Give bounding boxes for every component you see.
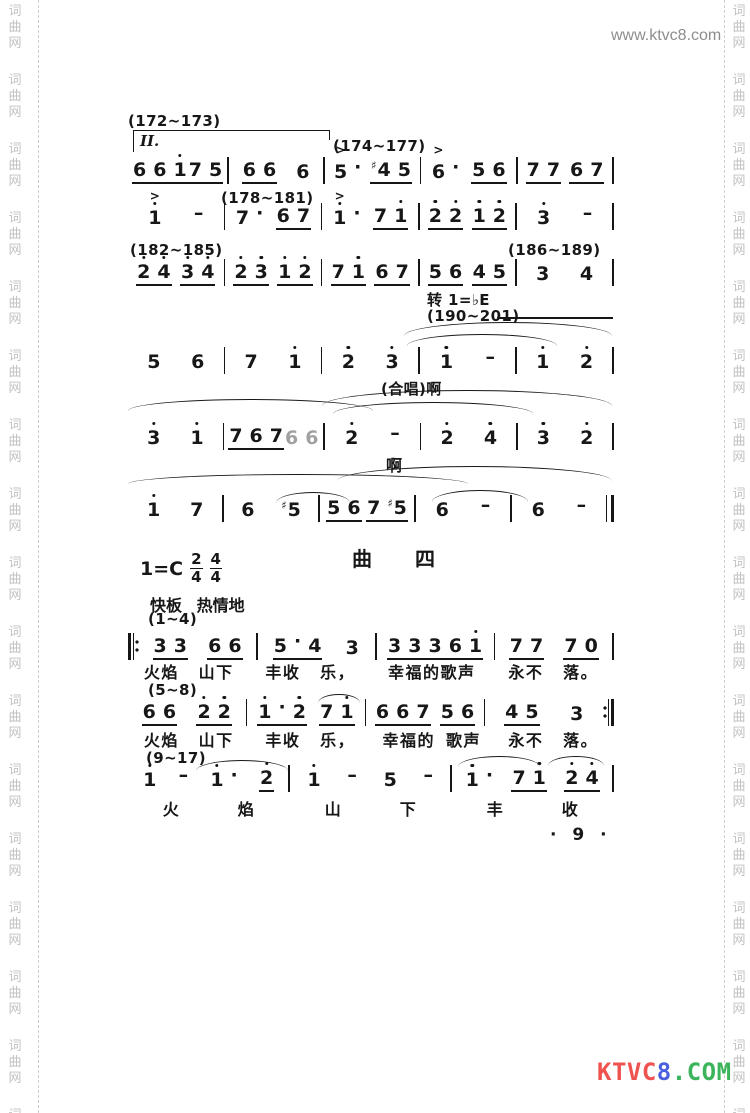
lyric-measure: 永不落。 <box>493 659 615 683</box>
beat-group: 71 <box>331 263 366 286</box>
beat-group: – <box>389 429 401 450</box>
note: 7 <box>189 161 202 180</box>
beat-group: ♯45 <box>370 160 412 184</box>
watermark-char: 词 <box>8 1039 21 1055</box>
slur-arc <box>337 466 612 481</box>
beat-group: – <box>485 353 497 374</box>
beat-group: 22 <box>196 703 231 726</box>
beat-group: 56 <box>471 161 506 184</box>
beat-group: 66 <box>242 161 277 184</box>
note: 4 <box>308 637 321 656</box>
note: 2 <box>260 769 273 788</box>
watermark-char: 词 <box>8 142 21 158</box>
extension-line <box>497 317 613 319</box>
note: 1 <box>340 703 353 722</box>
watermark-char: 词 <box>732 418 745 434</box>
measure: 2312 <box>225 263 321 288</box>
note: 5 <box>334 163 347 182</box>
note: 2 <box>345 429 358 448</box>
watermark-char: 网 <box>8 174 21 190</box>
beat-group: 2 <box>344 429 359 450</box>
beat-group: 1 <box>142 771 157 792</box>
beat-group: 1 <box>535 353 550 374</box>
watermark-char: 网 <box>732 795 745 811</box>
watermark-char: 曲 <box>732 365 745 381</box>
right-dashed-divider <box>724 0 725 1113</box>
beat-group: 3 <box>569 705 584 726</box>
measure: 17 <box>128 501 222 524</box>
lyric-measure: 山下 <box>290 796 452 820</box>
lyric-word: 下 <box>400 796 418 820</box>
beat-group: 7♯5 <box>366 498 408 522</box>
note: 7 <box>270 427 283 446</box>
measure: 31 <box>128 429 223 452</box>
measure: 24 <box>421 429 516 452</box>
note: 7 <box>564 637 577 656</box>
beat-group: 6· <box>431 163 460 184</box>
watermark-char: 曲 <box>732 986 745 1002</box>
watermark-char: 网 <box>732 36 745 52</box>
watermark-char: 词 <box>8 1108 21 1113</box>
note: 6 <box>153 161 166 180</box>
lyric-measure: 火焰山下 <box>128 659 250 683</box>
watermark-char: 网 <box>732 105 745 121</box>
watermark-char: 曲 <box>732 434 745 450</box>
note: 1 <box>210 771 223 790</box>
measure: 56 <box>128 353 224 376</box>
beat-group: 70 <box>563 637 598 660</box>
lyric-word: 乐， <box>320 659 355 683</box>
beat-group: 5 <box>146 353 161 374</box>
lyric-word: 丰收 <box>265 727 300 751</box>
note: 1 <box>147 501 160 520</box>
beat-group: 6 <box>531 501 546 522</box>
measure: 71 <box>225 353 321 376</box>
note: 2 <box>429 207 442 226</box>
note: 4 <box>505 703 518 722</box>
lyric-word: 歌声 <box>446 727 481 751</box>
watermark-char: 词 <box>8 763 21 779</box>
note: 3 <box>154 637 167 656</box>
notation-line-3: 243423127167564534 <box>128 248 614 288</box>
note: 3 <box>537 429 550 448</box>
watermark-column-left: 词曲网词曲网词曲网词曲网词曲网词曲网词曲网词曲网词曲网词曲网词曲网词曲网词曲网词… <box>6 4 24 1113</box>
watermark-column-right: 词曲网词曲网词曲网词曲网词曲网词曲网词曲网词曲网词曲网词曲网词曲网词曲网词曲网词… <box>730 4 748 1113</box>
beat-group: 1·2 <box>257 703 307 726</box>
dash: – <box>583 204 593 223</box>
watermark-char: 词 <box>732 901 745 917</box>
dash: – <box>424 766 434 785</box>
note: 7 <box>530 637 543 656</box>
measure: 5·♯45 <box>325 160 420 186</box>
note: 2 <box>137 263 150 282</box>
note: 1 <box>533 769 546 788</box>
note: 4 <box>484 429 497 448</box>
note: 3 <box>147 429 160 448</box>
watermark-char: 网 <box>8 519 21 535</box>
note: ♯4 <box>371 160 391 180</box>
watermark-char: 词 <box>8 487 21 503</box>
note: 1 <box>307 771 320 790</box>
note: 6 <box>143 703 156 722</box>
watermark-char: 曲 <box>732 503 745 519</box>
note: 6 <box>133 161 146 180</box>
beat-group: 77 <box>526 161 561 184</box>
watermark-char: 曲 <box>732 917 745 933</box>
dash: – <box>390 424 400 443</box>
watermark-char: 网 <box>8 381 21 397</box>
logo-part-com: .COM <box>672 1058 732 1086</box>
beat-group: 1· <box>332 209 361 230</box>
note: 1 <box>536 353 549 372</box>
watermark-char: 曲 <box>732 296 745 312</box>
beat-group: 45 <box>472 263 507 286</box>
watermark-char: 网 <box>732 588 745 604</box>
note: 6 <box>449 263 462 282</box>
barline <box>612 259 614 286</box>
watermark-char: 词 <box>732 832 745 848</box>
beat-group: 34 <box>180 263 215 286</box>
lyric-word: 火焰 <box>144 727 179 751</box>
dash: – <box>577 496 587 515</box>
note: 7 <box>590 161 603 180</box>
note: 3 <box>346 639 359 658</box>
watermark-char: 曲 <box>8 434 21 450</box>
beat-group: 7 <box>189 501 204 522</box>
watermark-char: 词 <box>8 970 21 986</box>
watermark-char: 词 <box>8 694 21 710</box>
note: 0 <box>585 637 598 656</box>
watermark-char: 曲 <box>8 848 21 864</box>
beat-group: 5·4 <box>273 637 323 660</box>
beat-group: – <box>582 209 594 230</box>
note: 2 <box>342 353 355 372</box>
note: 7 <box>510 637 523 656</box>
beat-group: 75 <box>188 161 223 184</box>
lyrics-line-1: 火焰山下丰收乐，幸福的歌声永不落。 <box>128 659 614 683</box>
beat-group: 1 <box>306 771 321 792</box>
lyric-word: 山 <box>325 796 343 820</box>
dot: · <box>354 158 361 177</box>
note: 2 <box>449 207 462 226</box>
beat-group: 7 <box>243 353 258 374</box>
watermark-char: 网 <box>8 312 21 328</box>
note: 7 <box>416 703 429 722</box>
tempo-marking: 快板 热情地 <box>150 592 245 616</box>
lyrics-line-3: 火焰山下丰收 <box>128 796 614 820</box>
measure: 453 <box>485 703 603 728</box>
watermark-char: 网 <box>732 381 745 397</box>
barline <box>612 633 614 660</box>
lyric-word: 丰 <box>487 796 505 820</box>
note: 7 <box>297 207 310 226</box>
beat-group: 4 <box>579 265 594 286</box>
note: 6 <box>449 637 462 656</box>
beat-group: 45 <box>504 703 539 726</box>
watermark-char: 曲 <box>732 779 745 795</box>
beat-group: 3 <box>146 429 161 450</box>
lyric-measure: 幸福的歌声 <box>371 659 493 683</box>
note: 2 <box>197 703 210 722</box>
beat-group: 22 <box>428 207 463 230</box>
watermark-char: 词 <box>732 142 745 158</box>
note: 3 <box>570 705 583 724</box>
notation-line-8: 66221·27166756453 <box>128 688 614 728</box>
lyric-word: 落。 <box>563 659 598 683</box>
barline <box>612 423 614 450</box>
note: 6 <box>396 703 409 722</box>
watermark-char: 曲 <box>732 848 745 864</box>
note: 1 <box>278 263 291 282</box>
beat-group: 3 <box>536 209 551 230</box>
watermark-char: 曲 <box>732 89 745 105</box>
measure: 76766 <box>224 427 323 452</box>
watermark-char: 曲 <box>8 227 21 243</box>
watermark-char: 网 <box>8 864 21 880</box>
beat-group: 24 <box>564 769 599 792</box>
beat-group: 4 <box>483 429 498 450</box>
measure: 12 <box>517 353 613 376</box>
note: 6 <box>263 161 276 180</box>
lyric-word: 丰收 <box>265 659 300 683</box>
measure: 1–5– <box>290 771 450 794</box>
key-text: 1=C <box>140 558 183 580</box>
note: 7 <box>367 499 380 518</box>
beat-group: 2 <box>579 429 594 450</box>
watermark-char: 网 <box>732 864 745 880</box>
beat-group: 71 <box>373 207 408 230</box>
measure: 2212 <box>420 207 516 232</box>
watermark-char: 词 <box>8 73 21 89</box>
note: 6 <box>492 161 505 180</box>
beat-group: 1· <box>209 771 238 792</box>
note: 3 <box>536 265 549 284</box>
lyric-word: 焰 <box>238 796 256 820</box>
watermark-char: 曲 <box>8 641 21 657</box>
dot: · <box>452 158 459 177</box>
measure: 66175 <box>128 161 227 186</box>
watermark-char: 网 <box>8 1002 21 1018</box>
beat-group: 767 <box>228 427 284 450</box>
note: 7 <box>527 161 540 180</box>
beat-group: 1 <box>147 209 162 230</box>
beat-group: 5 <box>383 771 398 792</box>
note: 6 <box>250 427 263 446</box>
watermark-char: 词 <box>732 4 745 20</box>
note: 1 <box>466 771 479 790</box>
beat-group: 3 <box>345 639 360 660</box>
watermark-char: 曲 <box>8 917 21 933</box>
note: 5 <box>147 353 160 372</box>
note: 5 <box>525 703 538 722</box>
watermark-char: 词 <box>8 211 21 227</box>
note: 3 <box>428 637 441 656</box>
note: 7 <box>320 703 333 722</box>
sheet-music-page: 词曲网词曲网词曲网词曲网词曲网词曲网词曲网词曲网词曲网词曲网词曲网词曲网词曲网词… <box>0 0 750 1113</box>
notation-line-6: 176♯5567♯56–6– <box>128 484 614 524</box>
measure: 1·7124 <box>452 769 612 794</box>
beat-group: 1 <box>146 501 161 522</box>
note: 5 <box>472 161 485 180</box>
dot: · <box>353 204 360 223</box>
beat-group: – <box>346 771 358 792</box>
note: 3 <box>388 637 401 656</box>
note: 6 <box>285 429 298 448</box>
site-url[interactable]: www.ktvc8.com <box>611 27 721 45</box>
dot: · <box>278 698 285 717</box>
watermark-char: 曲 <box>8 986 21 1002</box>
watermark-char: 曲 <box>732 572 745 588</box>
note: 6 <box>191 353 204 372</box>
watermark-char: 词 <box>732 1108 745 1113</box>
watermark-char: 词 <box>732 763 745 779</box>
watermark-char: 曲 <box>732 227 745 243</box>
watermark-char: 曲 <box>8 20 21 36</box>
note: 6 <box>532 501 545 520</box>
note: 5 <box>441 703 454 722</box>
measure: 1·271 <box>247 703 365 728</box>
note: 3 <box>181 263 194 282</box>
watermark-char: 曲 <box>8 503 21 519</box>
watermark-char: 词 <box>8 556 21 572</box>
beat-group: 6 <box>240 501 255 522</box>
watermark-char: 网 <box>8 105 21 121</box>
watermark-char: 词 <box>732 556 745 572</box>
measure: 5645 <box>420 263 516 288</box>
meter-4-4: 4 4 <box>210 551 222 587</box>
measure: 3– <box>517 209 613 232</box>
lyric-measure: 丰收乐， <box>250 659 372 683</box>
beat-group: – <box>480 501 492 522</box>
beat-group: 23 <box>233 263 268 286</box>
beat-group: 6 <box>190 353 205 374</box>
watermark-char: 网 <box>8 795 21 811</box>
measure: 23 <box>322 353 418 376</box>
watermark-char: 网 <box>8 933 21 949</box>
lyric-measure: 丰收 <box>452 796 614 820</box>
note: 7 <box>190 501 203 520</box>
note: 3 <box>255 263 268 282</box>
note: 1 <box>333 209 346 228</box>
note: 7 <box>332 263 345 282</box>
watermark-char: 词 <box>8 625 21 641</box>
note: 5 <box>384 771 397 790</box>
measure: 2– <box>325 429 420 452</box>
beat-group: 3 <box>536 429 551 450</box>
repeat-start-barline <box>128 633 139 660</box>
note: 6 <box>163 703 176 722</box>
barline <box>612 203 614 230</box>
watermark-char: 网 <box>732 243 745 259</box>
note: 4 <box>580 265 593 284</box>
measure: 1–1·2 <box>128 769 288 794</box>
watermark-char: 曲 <box>732 158 745 174</box>
measure: 32 <box>518 429 613 452</box>
lyric-measure: 火焰山下 <box>128 727 250 751</box>
beat-group: – <box>423 771 435 792</box>
watermark-char: 网 <box>732 312 745 328</box>
beat-group: 77 <box>509 637 544 660</box>
beat-group: 1 <box>189 429 204 450</box>
watermark-char: 网 <box>732 726 745 742</box>
watermark-char: 词 <box>8 901 21 917</box>
measure: 7767 <box>518 161 613 186</box>
note: 1 <box>258 703 271 722</box>
watermark-char: 词 <box>8 280 21 296</box>
watermark-char: 网 <box>8 1071 21 1087</box>
note: 5 <box>398 161 411 180</box>
note: 1 <box>394 207 407 226</box>
measure: 6♯5 <box>224 500 318 524</box>
lyric-word: 幸福的 <box>382 727 435 751</box>
beat-group: 12 <box>277 263 312 286</box>
watermark-char: 曲 <box>8 365 21 381</box>
measure: 6– <box>512 501 606 524</box>
note: 1 <box>469 637 482 656</box>
beat-group: 2 <box>439 429 454 450</box>
watermark-char: 网 <box>8 243 21 259</box>
note: 1 <box>173 161 186 180</box>
beat-group: 56 <box>428 263 463 286</box>
watermark-char: 网 <box>732 1002 745 1018</box>
note: 6 <box>305 429 318 448</box>
note: 6 <box>296 163 309 182</box>
beat-group: 6 <box>435 501 450 522</box>
watermark-char: 曲 <box>732 641 745 657</box>
lyric-word: 幸福的歌声 <box>388 659 476 683</box>
measure: 1– <box>420 353 516 376</box>
dot: · <box>294 632 301 651</box>
final-barline <box>606 495 614 522</box>
measure: 2434 <box>128 263 224 288</box>
beat-group: – <box>193 209 205 230</box>
note: 2 <box>218 703 231 722</box>
note: 6 <box>376 703 389 722</box>
site-logo[interactable]: KTVC8.COM <box>597 1058 732 1086</box>
watermark-char: 词 <box>732 625 745 641</box>
measure: 666 <box>229 161 324 186</box>
beat-group: 3 <box>384 353 399 374</box>
note: 4 <box>157 263 170 282</box>
lyrics-line-2: 火焰山下丰收乐，幸福的歌声永不落。 <box>128 727 614 751</box>
note: 6 <box>432 163 445 182</box>
beat-group: 66 <box>142 703 177 726</box>
watermark-char: 曲 <box>8 779 21 795</box>
note: 2 <box>440 429 453 448</box>
note: 1 <box>143 771 156 790</box>
note: 7 <box>512 769 525 788</box>
note: 6 <box>461 703 474 722</box>
note: ♯5 <box>281 500 301 520</box>
note: 6 <box>277 207 290 226</box>
note: 7 <box>236 209 249 228</box>
lyric-word: 火 <box>163 796 181 820</box>
notation-line-9: 1–1·21–5–1·7124 <box>128 754 614 794</box>
note: 2 <box>580 429 593 448</box>
beat-group: 66 <box>284 429 319 450</box>
beat-group: 2 <box>579 353 594 374</box>
note: 6 <box>570 161 583 180</box>
dash: – <box>179 766 189 785</box>
note: 3 <box>537 209 550 228</box>
lyric-word: 落。 <box>563 727 598 751</box>
watermark-char: 网 <box>732 174 745 190</box>
note: ♯5 <box>387 498 407 518</box>
note: 5 <box>274 637 287 656</box>
measure: 1·71 <box>322 207 418 232</box>
beat-group: 1· <box>465 771 494 792</box>
logo-part-8: 8 <box>657 1058 672 1086</box>
